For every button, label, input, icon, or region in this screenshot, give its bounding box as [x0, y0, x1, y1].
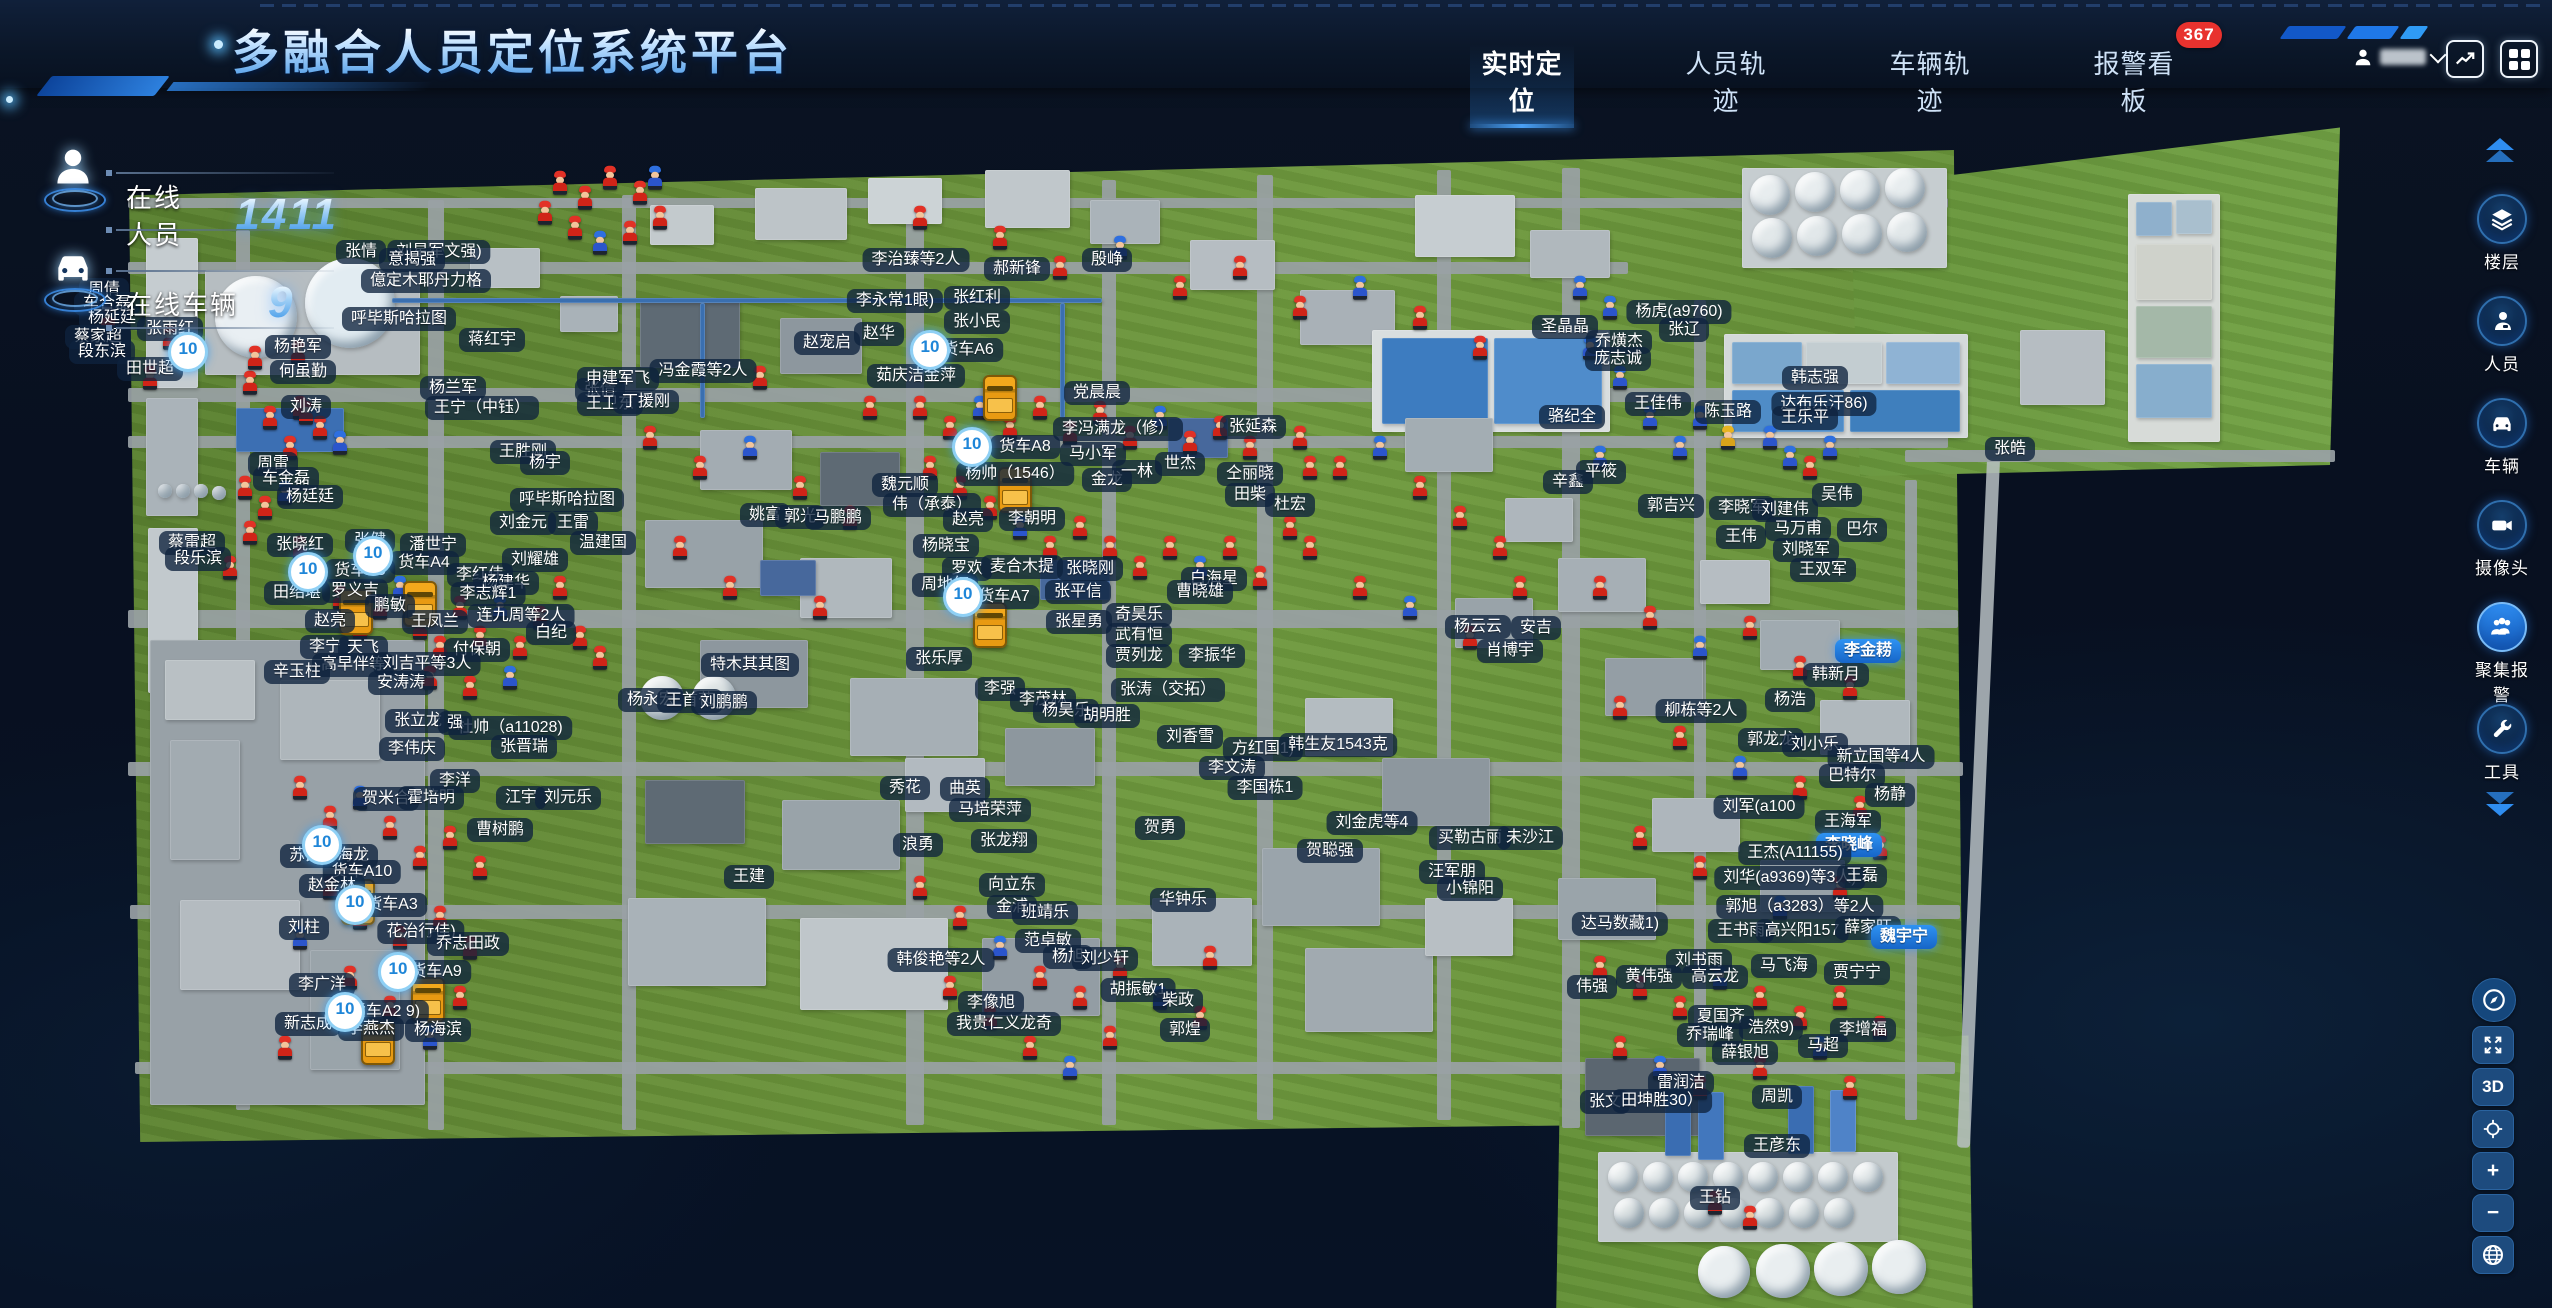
- tool-utilities[interactable]: 工具: [2468, 704, 2536, 783]
- storage-tank: [1750, 175, 1790, 215]
- name-label[interactable]: 韩志强: [1782, 366, 1848, 390]
- name-label[interactable]: 浩然9): [1739, 1016, 1803, 1040]
- name-label[interactable]: 赵亮: [943, 508, 993, 532]
- name-label[interactable]: 贾列龙: [1106, 644, 1172, 668]
- name-label[interactable]: 向立东: [979, 873, 1045, 897]
- name-label[interactable]: 李伟庆: [379, 737, 445, 761]
- person-marker[interactable]: [1831, 986, 1849, 1013]
- name-label[interactable]: 刘鹏鹏: [691, 691, 757, 715]
- person-marker[interactable]: [1571, 276, 1589, 303]
- person-marker[interactable]: [1591, 576, 1609, 603]
- name-label[interactable]: 曹晓雄: [1167, 580, 1233, 604]
- storage-tank: [1614, 1198, 1644, 1228]
- person-marker[interactable]: [591, 646, 609, 673]
- name-label[interactable]: 乔志田政: [427, 932, 509, 956]
- person-marker[interactable]: [1221, 536, 1239, 563]
- building-block: [640, 300, 740, 368]
- cluster-badge[interactable]: 10: [378, 952, 418, 992]
- person-marker[interactable]: [991, 226, 1009, 253]
- tool-personnel[interactable]: 人员: [2468, 296, 2536, 375]
- person-marker[interactable]: [721, 576, 739, 603]
- person-marker[interactable]: [1611, 696, 1629, 723]
- name-label[interactable]: 蒋红宇: [459, 328, 525, 352]
- person-marker[interactable]: [441, 826, 459, 853]
- name-label[interactable]: 刘香雪: [1157, 725, 1223, 749]
- name-label[interactable]: 冯金霞等2人: [650, 359, 757, 383]
- storage-tank: [1783, 1162, 1813, 1192]
- map-canvas[interactable]: 李治臻等2人郝新锋殷峥李永常1眼)张红利赵华张小民货车A6茹庆洁金萍党晨晨赵宠启…: [0, 0, 2552, 1308]
- storage-tank: [158, 484, 172, 498]
- person-marker[interactable]: [951, 906, 969, 933]
- globe-icon: [2481, 1243, 2505, 1267]
- cluster-badge[interactable]: 10: [353, 536, 393, 576]
- name-label[interactable]: 刘军(a100: [1714, 795, 1805, 819]
- storage-tank: [194, 484, 208, 498]
- stat-line: [116, 172, 334, 174]
- person-marker[interactable]: [601, 166, 619, 193]
- name-label[interactable]: 王凤兰: [402, 610, 468, 634]
- building-block: [645, 780, 745, 844]
- person-marker[interactable]: [1731, 756, 1749, 783]
- person-marker[interactable]: [911, 876, 929, 903]
- person-marker[interactable]: [1601, 296, 1619, 323]
- name-label[interactable]: 贺聪强: [1297, 839, 1363, 863]
- building-block: [2020, 330, 2105, 405]
- person-marker[interactable]: [1611, 1036, 1629, 1063]
- storage-tank: [1795, 172, 1835, 212]
- globe-button[interactable]: [2472, 1236, 2514, 1274]
- name-label[interactable]: 张晋瑞: [491, 735, 557, 759]
- camera-icon: [2489, 512, 2515, 538]
- name-label[interactable]: 杨晓宝: [913, 534, 979, 558]
- zoom-in-button[interactable]: +: [2472, 1152, 2514, 1190]
- name-label[interactable]: 肖博宇: [1477, 639, 1543, 663]
- name-label[interactable]: 刘元乐: [535, 786, 601, 810]
- person-marker[interactable]: [1291, 426, 1309, 453]
- name-label[interactable]: 韩俊艳等2人: [888, 948, 995, 972]
- name-label[interactable]: 张小民: [944, 310, 1010, 334]
- name-label[interactable]: 杨静: [1865, 783, 1915, 807]
- name-label[interactable]: 刘金虎等4: [1327, 811, 1418, 835]
- name-label[interactable]: 马鹏鹏: [805, 506, 871, 530]
- nav-tab-vehicle-track[interactable]: 车辆轨迹: [1878, 44, 1982, 128]
- tool-label: 人员: [2468, 350, 2536, 375]
- person-marker[interactable]: [1031, 966, 1049, 993]
- name-label[interactable]: 郭煌: [1160, 1018, 1210, 1042]
- name-label[interactable]: 杨宇: [520, 451, 570, 475]
- person-marker[interactable]: [471, 856, 489, 883]
- person-marker[interactable]: [1801, 456, 1819, 483]
- person-marker[interactable]: [1201, 946, 1219, 973]
- name-label[interactable]: 王彦东: [1744, 1134, 1810, 1158]
- person-marker[interactable]: [1351, 576, 1369, 603]
- person-marker[interactable]: [1631, 826, 1649, 853]
- name-label[interactable]: 王乐平: [1772, 406, 1838, 430]
- name-label[interactable]: 王钻: [1690, 1186, 1740, 1210]
- building-block: [1305, 948, 1433, 1032]
- storage-tank: [212, 486, 226, 500]
- name-label[interactable]: 未沙江: [1497, 826, 1563, 850]
- name-label[interactable]: 张辽: [1659, 318, 1709, 342]
- person-marker[interactable]: [1451, 506, 1469, 533]
- name-label[interactable]: 小锦阳: [1437, 877, 1503, 901]
- person-marker[interactable]: [1071, 986, 1089, 1013]
- name-label[interactable]: 刘涛: [281, 395, 331, 419]
- person-marker[interactable]: [1281, 516, 1299, 543]
- name-label[interactable]: 赵宠启: [794, 331, 860, 355]
- map-road: [1437, 170, 1451, 1120]
- name-label[interactable]: 柳栋等2人: [1656, 699, 1747, 723]
- name-label[interactable]: 杨海滨: [405, 1018, 471, 1042]
- name-label[interactable]: 张涛（交拓）: [1111, 678, 1225, 702]
- name-label[interactable]: 刘柱: [279, 916, 329, 940]
- fullscreen-button[interactable]: [2472, 1026, 2514, 1064]
- tool-cameras[interactable]: 摄像头: [2468, 500, 2536, 579]
- building-block: [1405, 418, 1493, 472]
- tool-floors[interactable]: 楼层: [2468, 194, 2536, 273]
- person-marker[interactable]: [1671, 436, 1689, 463]
- nav-tab-personnel-track[interactable]: 人员轨迹: [1674, 44, 1778, 128]
- person-marker[interactable]: [551, 576, 569, 603]
- person-marker[interactable]: [1241, 436, 1259, 463]
- person-marker[interactable]: [1751, 986, 1769, 1013]
- name-label[interactable]: 杨艳军: [265, 335, 331, 359]
- name-label[interactable]: 殷峥: [1082, 248, 1132, 272]
- name-label[interactable]: 温建国: [570, 531, 636, 555]
- building-block: [280, 680, 380, 760]
- name-label[interactable]: 杜宏: [1265, 493, 1315, 517]
- name-label[interactable]: 韩新月: [1803, 663, 1869, 687]
- nav-tab-alarm-board[interactable]: 报警看板 367: [2082, 44, 2186, 128]
- person-marker[interactable]: [861, 396, 879, 423]
- name-label[interactable]: 王伟: [1716, 525, 1766, 549]
- person-marker[interactable]: [1691, 856, 1709, 883]
- nav-tab-label: 人员轨迹: [1685, 49, 1766, 116]
- locate-button[interactable]: [2472, 1110, 2514, 1148]
- person-marker[interactable]: [246, 346, 264, 373]
- name-label[interactable]: 达马数藏1): [1572, 912, 1668, 936]
- person-marker[interactable]: [331, 431, 349, 458]
- name-label[interactable]: 李永常1眼): [847, 289, 943, 313]
- person-marker[interactable]: [1719, 426, 1737, 453]
- person-marker[interactable]: [1641, 606, 1659, 633]
- person-marker[interactable]: [1031, 396, 1049, 423]
- person-marker[interactable]: [1051, 256, 1069, 283]
- name-label[interactable]: 李金耢: [1835, 639, 1901, 663]
- storage-tank: [1752, 218, 1792, 258]
- person-marker[interactable]: [741, 436, 759, 463]
- name-label[interactable]: 王磊: [1837, 864, 1887, 888]
- name-label[interactable]: 张皓: [1985, 437, 2035, 461]
- tool-label: 聚集报警: [2468, 656, 2536, 706]
- name-label[interactable]: 李志辉1: [451, 582, 526, 606]
- nav-tab-realtime[interactable]: 实时定位: [1470, 44, 1574, 128]
- person-marker[interactable]: [291, 776, 309, 803]
- person-marker[interactable]: [1741, 1206, 1759, 1233]
- person-marker[interactable]: [1231, 256, 1249, 283]
- name-label[interactable]: 骆纪全: [1539, 405, 1605, 429]
- person-marker[interactable]: [1251, 566, 1269, 593]
- name-label[interactable]: 何虽勤: [270, 360, 336, 384]
- main-nav: 实时定位 人员轨迹 车辆轨迹 报警看板 367: [1470, 44, 2186, 128]
- name-label[interactable]: 白纪: [526, 621, 576, 645]
- name-label[interactable]: 李治臻等2人: [863, 248, 970, 272]
- cluster-badge[interactable]: 10: [288, 552, 328, 592]
- name-label[interactable]: 郭吉兴: [1638, 494, 1704, 518]
- person-marker[interactable]: [451, 986, 469, 1013]
- scroll-down-arrow[interactable]: [2478, 792, 2522, 822]
- person-marker[interactable]: [501, 666, 519, 693]
- person-marker[interactable]: [566, 216, 584, 243]
- person-marker[interactable]: [691, 456, 709, 483]
- name-label[interactable]: 高云龙: [1682, 965, 1748, 989]
- person-marker[interactable]: [1821, 436, 1839, 463]
- person-marker[interactable]: [1671, 996, 1689, 1023]
- building-block: [1425, 898, 1513, 956]
- header-dashes-decoration: [260, 4, 2546, 7]
- name-label[interactable]: 张延森: [1220, 415, 1286, 439]
- compass-button[interactable]: [2472, 978, 2516, 1022]
- person-marker[interactable]: [1781, 446, 1799, 473]
- name-label[interactable]: 辛玉柱: [264, 660, 330, 684]
- person-marker[interactable]: [1101, 1026, 1119, 1053]
- nav-tab-label: 报警看板: [2093, 49, 2174, 116]
- person-marker[interactable]: [1171, 276, 1189, 303]
- name-label[interactable]: 王杰(A11155): [1738, 841, 1851, 865]
- person-marker[interactable]: [646, 166, 664, 193]
- name-label[interactable]: 杨浩: [1765, 688, 1815, 712]
- name-label[interactable]: 张平信: [1045, 580, 1111, 604]
- header-band-decoration: [36, 76, 170, 96]
- name-label[interactable]: 郝新锋: [984, 257, 1050, 281]
- person-marker[interactable]: [256, 496, 274, 523]
- tool-gathering-alarm[interactable]: 聚集报警: [2468, 602, 2536, 706]
- name-label[interactable]: 薛银旭: [1712, 1041, 1778, 1065]
- person-marker[interactable]: [811, 596, 829, 623]
- truck-marker[interactable]: [983, 375, 1017, 421]
- person-marker[interactable]: [236, 476, 254, 503]
- storage-tank: [1885, 168, 1925, 208]
- name-label[interactable]: 党晨晨: [1064, 381, 1130, 405]
- name-label[interactable]: 世杰: [1155, 452, 1205, 476]
- name-label[interactable]: 田坤胜30）: [1612, 1089, 1712, 1113]
- name-label[interactable]: 王建: [724, 865, 774, 889]
- name-label[interactable]: 华钟乐: [1150, 888, 1216, 912]
- person-marker[interactable]: [1491, 536, 1509, 563]
- name-label[interactable]: 伟强: [1567, 975, 1617, 999]
- cluster-badge[interactable]: 10: [943, 577, 983, 617]
- name-label[interactable]: 巴尔: [1837, 518, 1887, 542]
- name-label[interactable]: 安吉: [1511, 616, 1561, 640]
- name-label[interactable]: 浪勇: [893, 833, 943, 857]
- name-label[interactable]: 丁援刚: [613, 390, 679, 414]
- person-marker[interactable]: [1161, 536, 1179, 563]
- name-label[interactable]: 马飞海: [1751, 954, 1817, 978]
- person-marker[interactable]: [381, 816, 399, 843]
- name-label[interactable]: 李冯满龙（修）: [1053, 417, 1183, 441]
- name-label[interactable]: 特木其其图: [701, 653, 799, 677]
- person-marker[interactable]: [411, 846, 429, 873]
- person-marker[interactable]: [651, 206, 669, 233]
- name-label[interactable]: 贺勇: [1135, 816, 1185, 840]
- username-blurred: [2380, 49, 2426, 65]
- causeway-road: [1957, 458, 2000, 1148]
- name-label[interactable]: 我贵仁义龙奇: [947, 1012, 1061, 1036]
- name-label[interactable]: 贾宁宁: [1824, 961, 1890, 985]
- storage-tank: [1797, 216, 1837, 256]
- name-label[interactable]: 班靖乐: [1012, 901, 1078, 925]
- person-marker[interactable]: [241, 521, 259, 548]
- person-marker[interactable]: [276, 1036, 294, 1063]
- name-label[interactable]: 赵亮: [305, 609, 355, 633]
- name-label[interactable]: 张晓刚: [1057, 557, 1123, 581]
- storage-tank: [1814, 1242, 1868, 1296]
- name-label[interactable]: 麦合木提: [981, 555, 1063, 579]
- name-label[interactable]: 段乐滨: [165, 547, 231, 571]
- name-label[interactable]: 张红利: [944, 286, 1010, 310]
- name-label[interactable]: 赵华: [854, 322, 904, 346]
- name-label[interactable]: 曹树鹏: [467, 818, 533, 842]
- name-label[interactable]: 柴政: [1153, 989, 1203, 1013]
- person-marker[interactable]: [941, 976, 959, 1003]
- name-label[interactable]: 马培荣萍: [949, 798, 1031, 822]
- name-label[interactable]: 李洋: [430, 769, 480, 793]
- person-marker[interactable]: [1301, 536, 1319, 563]
- person-marker[interactable]: [1691, 636, 1709, 663]
- name-label[interactable]: 魏宇宁: [1871, 925, 1937, 949]
- page-title: 多融合人员定位系统平台: [232, 14, 793, 83]
- name-label[interactable]: 刘耀雄: [502, 548, 568, 572]
- person-marker[interactable]: [1371, 436, 1389, 463]
- vehicle-value: 9: [268, 278, 294, 328]
- person-marker[interactable]: [1471, 336, 1489, 363]
- name-label[interactable]: 张星勇: [1046, 610, 1112, 634]
- name-label[interactable]: 张龙翔: [971, 829, 1037, 853]
- person-marker[interactable]: [641, 426, 659, 453]
- person-marker[interactable]: [1061, 1056, 1079, 1083]
- name-label[interactable]: 庞志诚: [1585, 347, 1651, 371]
- person-marker[interactable]: [591, 231, 609, 258]
- name-label[interactable]: 陈玉路: [1695, 400, 1761, 424]
- stat-line: [116, 270, 334, 272]
- person-marker[interactable]: [671, 536, 689, 563]
- name-label[interactable]: 呼毕斯哈拉图: [510, 488, 624, 512]
- person-marker[interactable]: [1071, 516, 1089, 543]
- name-label[interactable]: 李朝明: [999, 507, 1065, 531]
- name-label[interactable]: 秀花: [880, 776, 930, 800]
- name-label[interactable]: 王佳伟: [1625, 392, 1691, 416]
- 3d-button[interactable]: 3D: [2472, 1068, 2514, 1106]
- person-marker[interactable]: [1131, 556, 1149, 583]
- name-label[interactable]: 张乐厚: [906, 647, 972, 671]
- personnel-glow-icon: [42, 144, 104, 214]
- person-marker[interactable]: [911, 206, 929, 233]
- person-marker[interactable]: [1761, 426, 1779, 453]
- cluster-badge[interactable]: 10: [952, 427, 992, 467]
- name-label[interactable]: 货车A8: [990, 435, 1060, 459]
- name-label[interactable]: 刘少轩: [1072, 947, 1138, 971]
- scroll-up-arrow[interactable]: [2478, 138, 2522, 168]
- chevron-down-icon: [2430, 47, 2447, 64]
- person-marker[interactable]: [241, 371, 259, 398]
- storage-tank: [1649, 1198, 1679, 1228]
- cluster-badge[interactable]: 10: [910, 330, 950, 370]
- cluster-badge[interactable]: 10: [325, 992, 365, 1032]
- name-label[interactable]: 王海军: [1815, 810, 1881, 834]
- person-marker[interactable]: [621, 221, 639, 248]
- name-label[interactable]: 强: [438, 711, 472, 735]
- name-label[interactable]: 吴伟: [1812, 483, 1862, 507]
- name-label[interactable]: 周凯: [1752, 1085, 1802, 1109]
- name-label[interactable]: 李振华: [1179, 644, 1245, 668]
- zoom-out-label: −: [2487, 1201, 2499, 1225]
- name-label[interactable]: 刘金元: [490, 511, 556, 535]
- person-marker[interactable]: [1401, 596, 1419, 623]
- tool-vehicles[interactable]: 车辆: [2468, 398, 2536, 477]
- name-label[interactable]: 马超: [1798, 1034, 1848, 1058]
- person-marker[interactable]: [536, 201, 554, 228]
- name-label[interactable]: 李国栋1: [1228, 776, 1303, 800]
- name-label[interactable]: 茹庆洁金萍: [867, 364, 965, 388]
- storage-tank: [1887, 212, 1927, 252]
- person-marker[interactable]: [1841, 1076, 1859, 1103]
- user-menu[interactable]: [2352, 46, 2444, 68]
- map-road: [1905, 450, 2335, 462]
- name-label[interactable]: 奇昊乐: [1106, 603, 1172, 627]
- name-label[interactable]: 申建军飞: [577, 367, 659, 391]
- cluster-badge[interactable]: 10: [302, 825, 342, 865]
- person-marker[interactable]: [1671, 726, 1689, 753]
- person-marker[interactable]: [261, 406, 279, 433]
- vehicle-glow-icon: [42, 244, 104, 314]
- building-block: [2136, 306, 2212, 358]
- person-marker[interactable]: [791, 476, 809, 503]
- name-label[interactable]: 億定木耶丹力格: [361, 269, 491, 293]
- name-label[interactable]: 安涛涛: [368, 671, 434, 695]
- cluster-badge[interactable]: 10: [335, 885, 375, 925]
- zoom-out-button[interactable]: −: [2472, 1194, 2514, 1232]
- name-label[interactable]: 杨云云: [1445, 615, 1511, 639]
- person-marker[interactable]: [1021, 1036, 1039, 1063]
- building-block: [850, 678, 978, 756]
- person-marker[interactable]: [1411, 476, 1429, 503]
- cluster-badge[interactable]: 10: [168, 332, 208, 372]
- name-label[interactable]: 杨廷廷: [277, 485, 343, 509]
- name-label[interactable]: 胡明胜: [1074, 704, 1140, 728]
- building-block: [1505, 498, 1573, 542]
- person-marker[interactable]: [1331, 456, 1349, 483]
- person-marker[interactable]: [1351, 276, 1369, 303]
- person-marker[interactable]: [461, 676, 479, 703]
- name-label[interactable]: 呼毕斯哈拉图: [342, 307, 456, 331]
- building-block: [1886, 342, 1960, 384]
- person-marker[interactable]: [1291, 296, 1309, 323]
- person-marker[interactable]: [1511, 576, 1529, 603]
- person-marker[interactable]: [576, 186, 594, 213]
- stat-line: [116, 229, 334, 231]
- person-marker[interactable]: [551, 171, 569, 198]
- person-icon: [2490, 309, 2514, 333]
- person-marker[interactable]: [911, 396, 929, 423]
- name-label[interactable]: 韩生友1543克: [1279, 733, 1397, 757]
- online-personnel-stat: 在线人员 1411: [28, 140, 338, 232]
- person-marker[interactable]: [1411, 306, 1429, 333]
- person-marker[interactable]: [1301, 456, 1319, 483]
- person-marker[interactable]: [1741, 616, 1759, 643]
- name-label[interactable]: 王宁（中钰）: [425, 396, 539, 420]
- name-label[interactable]: 平筱: [1576, 460, 1626, 484]
- name-label[interactable]: 王双军: [1790, 558, 1856, 582]
